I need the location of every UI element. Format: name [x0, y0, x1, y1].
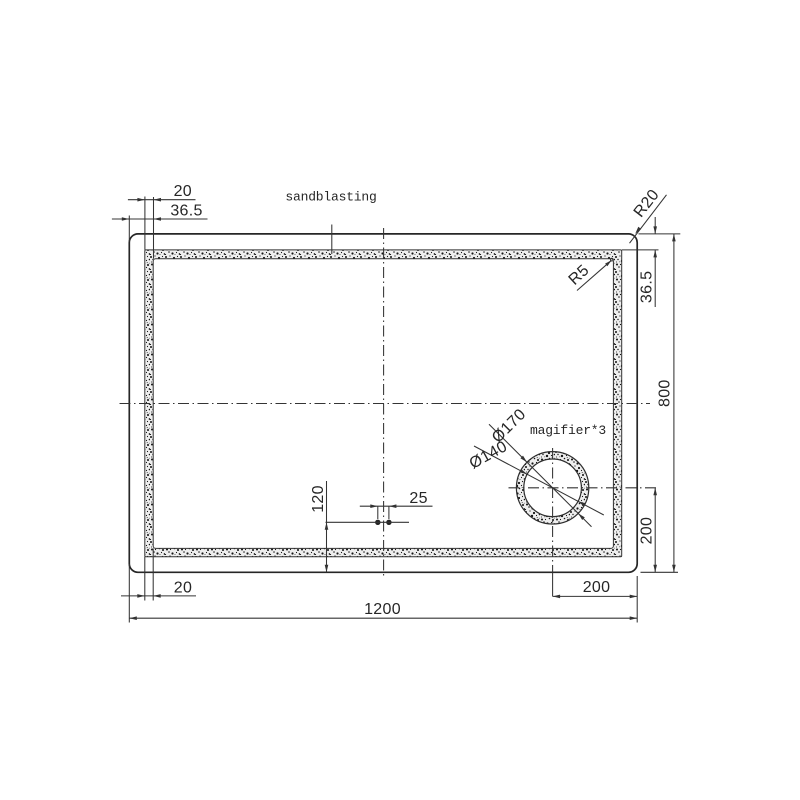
svg-text:120: 120	[310, 485, 327, 513]
svg-text:200: 200	[638, 517, 655, 545]
svg-text:800: 800	[657, 379, 674, 407]
svg-text:36.5: 36.5	[639, 271, 656, 303]
svg-text:20: 20	[174, 183, 192, 200]
svg-text:200: 200	[583, 579, 611, 596]
svg-text:1200: 1200	[364, 601, 401, 618]
svg-text:magifier*3: magifier*3	[530, 423, 606, 438]
svg-text:36.5: 36.5	[170, 202, 202, 219]
svg-text:25: 25	[409, 490, 427, 507]
svg-text:sandblasting: sandblasting	[285, 190, 376, 205]
svg-text:20: 20	[174, 580, 192, 597]
